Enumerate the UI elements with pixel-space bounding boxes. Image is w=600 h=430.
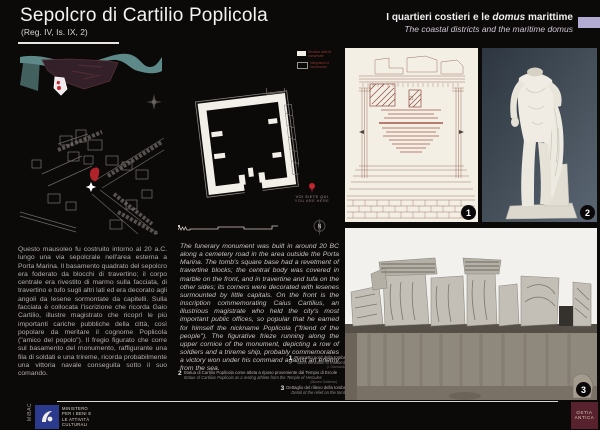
figure-number-badge: 1 [461, 205, 476, 220]
figure-frieze-photo: 3 [345, 228, 597, 400]
ministry-name: MINISTERO PER I BENI E LE ATTIVITÀ CULTU… [60, 406, 91, 427]
footer-divider [57, 401, 558, 402]
page-subtitle: (Reg. IV, Is. IX, 2) [21, 27, 88, 37]
you-are-here-label: VOI SIETE QUI YOU ARE HERE [286, 183, 338, 203]
section-header: I quartieri costieri e le domus marittim… [386, 12, 573, 34]
figure-captions: 1 Prospetto nord della tomba North eleva… [178, 356, 346, 397]
figure-number-badge: 2 [580, 205, 595, 220]
caption-figure-2: 2 Statua di Cartilio Poplicola come atle… [178, 371, 346, 385]
section-title-en: The coastal districts and the maritime d… [386, 24, 573, 34]
ostia-overview-map [18, 45, 162, 117]
location-pin-icon [308, 183, 316, 194]
figure-elevation-drawing: 1 [345, 48, 478, 222]
mibac-vertical-label: MiBAC [27, 413, 33, 421]
section-color-swatch [578, 17, 600, 28]
caption-figure-3: 3 Dettaglio del rilievo della tomba Deta… [178, 386, 346, 396]
frieze-outline-sketch [178, 222, 291, 234]
compass-rose-icon [146, 94, 162, 112]
legend-swatch-solid [297, 51, 306, 56]
body-text-italian: Questo mausoleo fu costruito intorno al … [18, 246, 167, 379]
you-are-here-star [86, 182, 96, 192]
legend-item-preserved: Strutture antiche conservate [297, 50, 341, 58]
information-panel: Sepolcro di Cartilio Poplicola (Reg. IV,… [0, 0, 600, 430]
compass-north-icon: N [313, 218, 326, 237]
figure-number-badge: 3 [576, 382, 591, 397]
svg-text:N: N [318, 224, 322, 230]
caption-figure-1: 1 Prospetto nord della tomba North eleva… [178, 356, 346, 370]
page-title: Sepolcro di Cartilio Poplicola [20, 5, 268, 27]
tomb-plan-drawing [195, 88, 299, 202]
legend-swatch-outline [297, 62, 308, 69]
figure-statue-photo: 2 [482, 48, 597, 222]
left-divider [18, 42, 119, 44]
ostia-antica-logo: OSTIA ANTICA [571, 402, 598, 429]
plan-legend: Strutture antiche conservate Integrazion… [297, 50, 341, 72]
site-location-map [18, 116, 166, 236]
section-title-it: I quartieri costieri e le domus marittim… [386, 12, 573, 24]
mibac-emblem-icon [35, 405, 59, 429]
body-text-english: The funerary monument was built in aroun… [180, 243, 339, 374]
legend-item-restored: Integrazioni e ricostruzioni [297, 61, 341, 69]
mibac-logo: MiBAC MINISTERO PER I BENI E LE ATTIVITÀ… [26, 404, 91, 429]
